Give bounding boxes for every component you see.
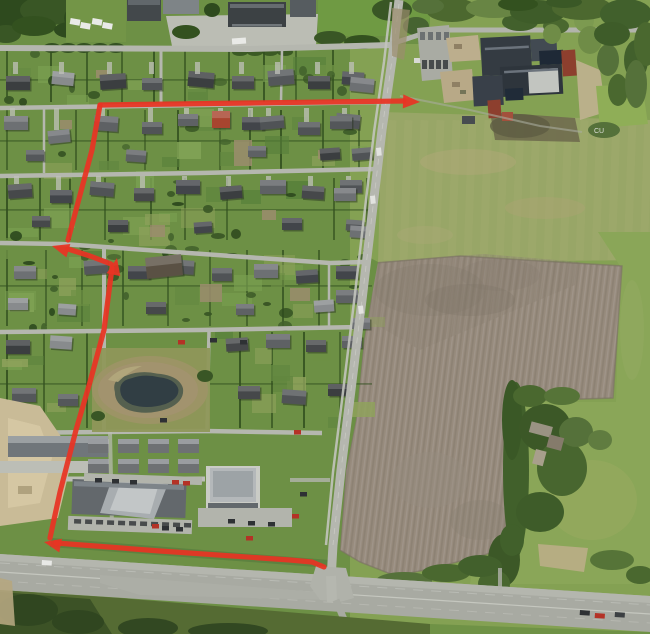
svg-text:CU: CU (594, 128, 604, 135)
